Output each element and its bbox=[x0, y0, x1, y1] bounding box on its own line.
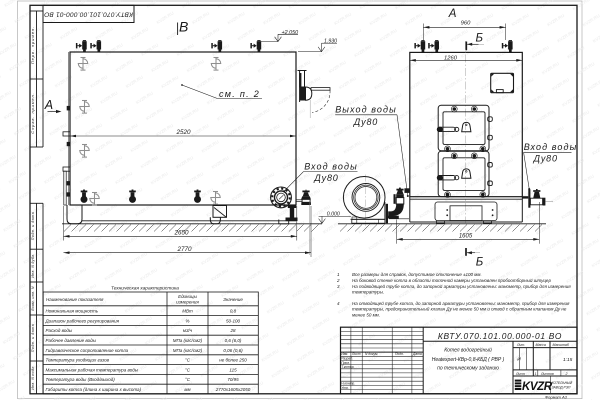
svg-text:Габариты котла (длина х ширина: Габариты котла (длина х ширина х высота) bbox=[46, 387, 142, 392]
svg-text:Листов: Листов bbox=[540, 372, 554, 376]
svg-text:Перв. примен.: Перв. примен. bbox=[30, 26, 35, 64]
svg-text:не более 250: не более 250 bbox=[219, 358, 247, 363]
svg-text:°С: °С bbox=[185, 358, 191, 363]
svg-text:Ду80: Ду80 bbox=[533, 153, 558, 163]
svg-text:2: 2 bbox=[336, 278, 340, 283]
svg-text:Единицы: Единицы bbox=[178, 294, 198, 299]
svg-text:1.930: 1.930 bbox=[324, 38, 337, 44]
svg-text:Номинальная мощность: Номинальная мощность bbox=[46, 309, 99, 314]
svg-text:2770х1605х2050: 2770х1605х2050 bbox=[215, 387, 251, 392]
svg-text:Изм.: Изм. bbox=[341, 352, 348, 356]
svg-text:Лист: Лист bbox=[515, 372, 525, 376]
svg-text:2770: 2770 bbox=[176, 246, 192, 253]
svg-text:Вход воды: Вход воды bbox=[524, 142, 578, 152]
svg-text:Т.контр.: Т.контр. bbox=[341, 365, 354, 369]
svg-text:70/95: 70/95 bbox=[227, 377, 239, 382]
svg-text:см. п. 2: см. п. 2 bbox=[219, 89, 260, 99]
svg-text:Лит.: Лит. bbox=[516, 343, 525, 347]
svg-text:50-100: 50-100 bbox=[226, 318, 241, 323]
svg-text:Рабочее давление воды: Рабочее давление воды bbox=[46, 338, 97, 343]
svg-text:Наименование показателя: Наименование показателя bbox=[46, 297, 104, 302]
svg-text:А3: А3 bbox=[561, 394, 568, 399]
svg-text:2650: 2650 bbox=[173, 230, 189, 237]
svg-text:N докум.: N докум. bbox=[365, 352, 378, 356]
svg-text:Взам. инв. N: Взам. инв. N bbox=[31, 286, 35, 311]
svg-text:А: А bbox=[448, 8, 457, 20]
svg-text:+2.050: +2.050 bbox=[282, 30, 299, 36]
svg-text:Температура уходящих газов: Температура уходящих газов bbox=[46, 358, 110, 363]
svg-text:Утв.: Утв. bbox=[341, 386, 349, 390]
svg-text:КОТЕЛЬНЫЙ: КОТЕЛЬНЫЙ bbox=[552, 381, 573, 385]
svg-text:Подп. и дата: Подп. и дата bbox=[31, 212, 35, 241]
svg-text:1260: 1260 bbox=[444, 55, 458, 61]
svg-text:Температура воды (Вход/выход): Температура воды (Вход/выход) bbox=[46, 377, 116, 382]
svg-text:1605: 1605 bbox=[459, 234, 473, 240]
svg-text:2: 2 bbox=[565, 372, 568, 376]
svg-text:Выход воды: Выход воды bbox=[335, 105, 397, 115]
svg-text:Ду80: Ду80 bbox=[313, 173, 338, 183]
svg-text:МПа (кгс/см2): МПа (кгс/см2) bbox=[173, 338, 203, 343]
svg-text:менее 50 мм.: менее 50 мм. bbox=[352, 313, 380, 318]
svg-text:1: 1 bbox=[535, 372, 537, 376]
svg-text:температуры, предохранительный: температуры, предохранительный клапан Ду… bbox=[352, 306, 567, 312]
svg-text:Масса: Масса bbox=[536, 343, 546, 347]
svg-text:Все размеры для справок, допус: Все размеры для справок, допустимое откл… bbox=[352, 272, 482, 277]
svg-text:115: 115 bbox=[229, 367, 237, 372]
svg-text:Расход воды: Расход воды bbox=[46, 328, 73, 333]
svg-text:0.000: 0.000 bbox=[327, 212, 340, 218]
svg-text:Инв. N подл.: Инв. N подл. bbox=[31, 365, 35, 390]
svg-text:Котел водогрейный: Котел водогрейный bbox=[444, 347, 492, 354]
svg-text:На подводящей трубе котла, до: На подводящей трубе котла, до запорной а… bbox=[352, 283, 571, 289]
svg-text:°С: °С bbox=[185, 377, 191, 382]
svg-text:0,06 (0,6): 0,06 (0,6) bbox=[223, 348, 243, 353]
svg-text:Диапазон рабочего регулировани: Диапазон рабочего регулирования bbox=[45, 318, 120, 323]
svg-text:Б: Б bbox=[476, 32, 484, 44]
svg-text:2520: 2520 bbox=[175, 129, 191, 136]
svg-text:Гидравлическое сопротивление к: Гидравлическое сопротивление котла bbox=[46, 348, 129, 353]
svg-text:Вход воды: Вход воды bbox=[304, 162, 358, 172]
svg-text:Справ. примен.: Справ. примен. bbox=[30, 92, 35, 133]
svg-text:И: И bbox=[517, 357, 521, 363]
svg-text:Масштаб: Масштаб bbox=[553, 343, 570, 347]
svg-text:ЗАВОД РЭП: ЗАВОД РЭП bbox=[552, 385, 572, 389]
svg-text:KVZR: KVZR bbox=[522, 381, 553, 393]
svg-text:В: В bbox=[179, 19, 188, 35]
svg-text:мм: мм bbox=[184, 387, 190, 392]
svg-text:Ду80: Ду80 bbox=[353, 117, 378, 127]
svg-text:Б: Б bbox=[476, 256, 484, 268]
svg-text:0,8: 0,8 bbox=[230, 309, 237, 314]
svg-text:Подп. и дата: Подп. и дата bbox=[31, 324, 35, 353]
svg-text:Подп.: Подп. bbox=[395, 352, 404, 356]
svg-text:%: % bbox=[185, 318, 189, 323]
svg-text:по техническому заданию: по техническому заданию bbox=[437, 365, 499, 371]
svg-text:Инв. N дубл.: Инв. N дубл. bbox=[31, 253, 35, 277]
svg-text:КВТУ.070.101.00.000-01 ВО: КВТУ.070.101.00.000-01 ВО bbox=[44, 10, 133, 17]
svg-text:КВТУ.070.101.00.000-01 ВО: КВТУ.070.101.00.000-01 ВО bbox=[438, 331, 562, 341]
svg-text:Лист: Лист bbox=[351, 352, 361, 356]
svg-text:28: 28 bbox=[229, 328, 236, 333]
svg-text:МВт: МВт bbox=[182, 309, 193, 314]
svg-text:На отводящей трубе котла, до з: На отводящей трубе котла, до запорной ар… bbox=[352, 300, 570, 306]
svg-text:1:15: 1:15 bbox=[563, 357, 573, 363]
svg-text:Значение: Значение bbox=[223, 297, 243, 302]
svg-text:На боковой стенке котла в обла: На боковой стенке котла в области топочн… bbox=[352, 277, 551, 283]
svg-text:Максимальная рабочая температу: Максимальная рабочая температура воды bbox=[46, 367, 139, 372]
svg-text:температуры.: температуры. bbox=[352, 289, 384, 294]
svg-text:0,6 (6,0): 0,6 (6,0) bbox=[225, 338, 242, 343]
svg-text:°С: °С bbox=[185, 367, 191, 372]
svg-text:Дата: Дата bbox=[412, 352, 422, 356]
svg-text:МПа (кгс/см2): МПа (кгс/см2) bbox=[173, 348, 203, 353]
svg-text:измерения: измерения bbox=[176, 299, 199, 304]
svg-text:Формат: Формат bbox=[545, 394, 562, 399]
svg-text:960: 960 bbox=[461, 21, 471, 27]
svg-text:м3/ч: м3/ч bbox=[183, 328, 193, 333]
svg-text:Heatexpert-КВр-0,8-КБД ( РВР ): Heatexpert-КВр-0,8-КБД ( РВР ) bbox=[432, 357, 505, 363]
svg-text:Техническая характеристика: Техническая характеристика bbox=[111, 286, 179, 292]
svg-text:А: А bbox=[44, 98, 53, 112]
